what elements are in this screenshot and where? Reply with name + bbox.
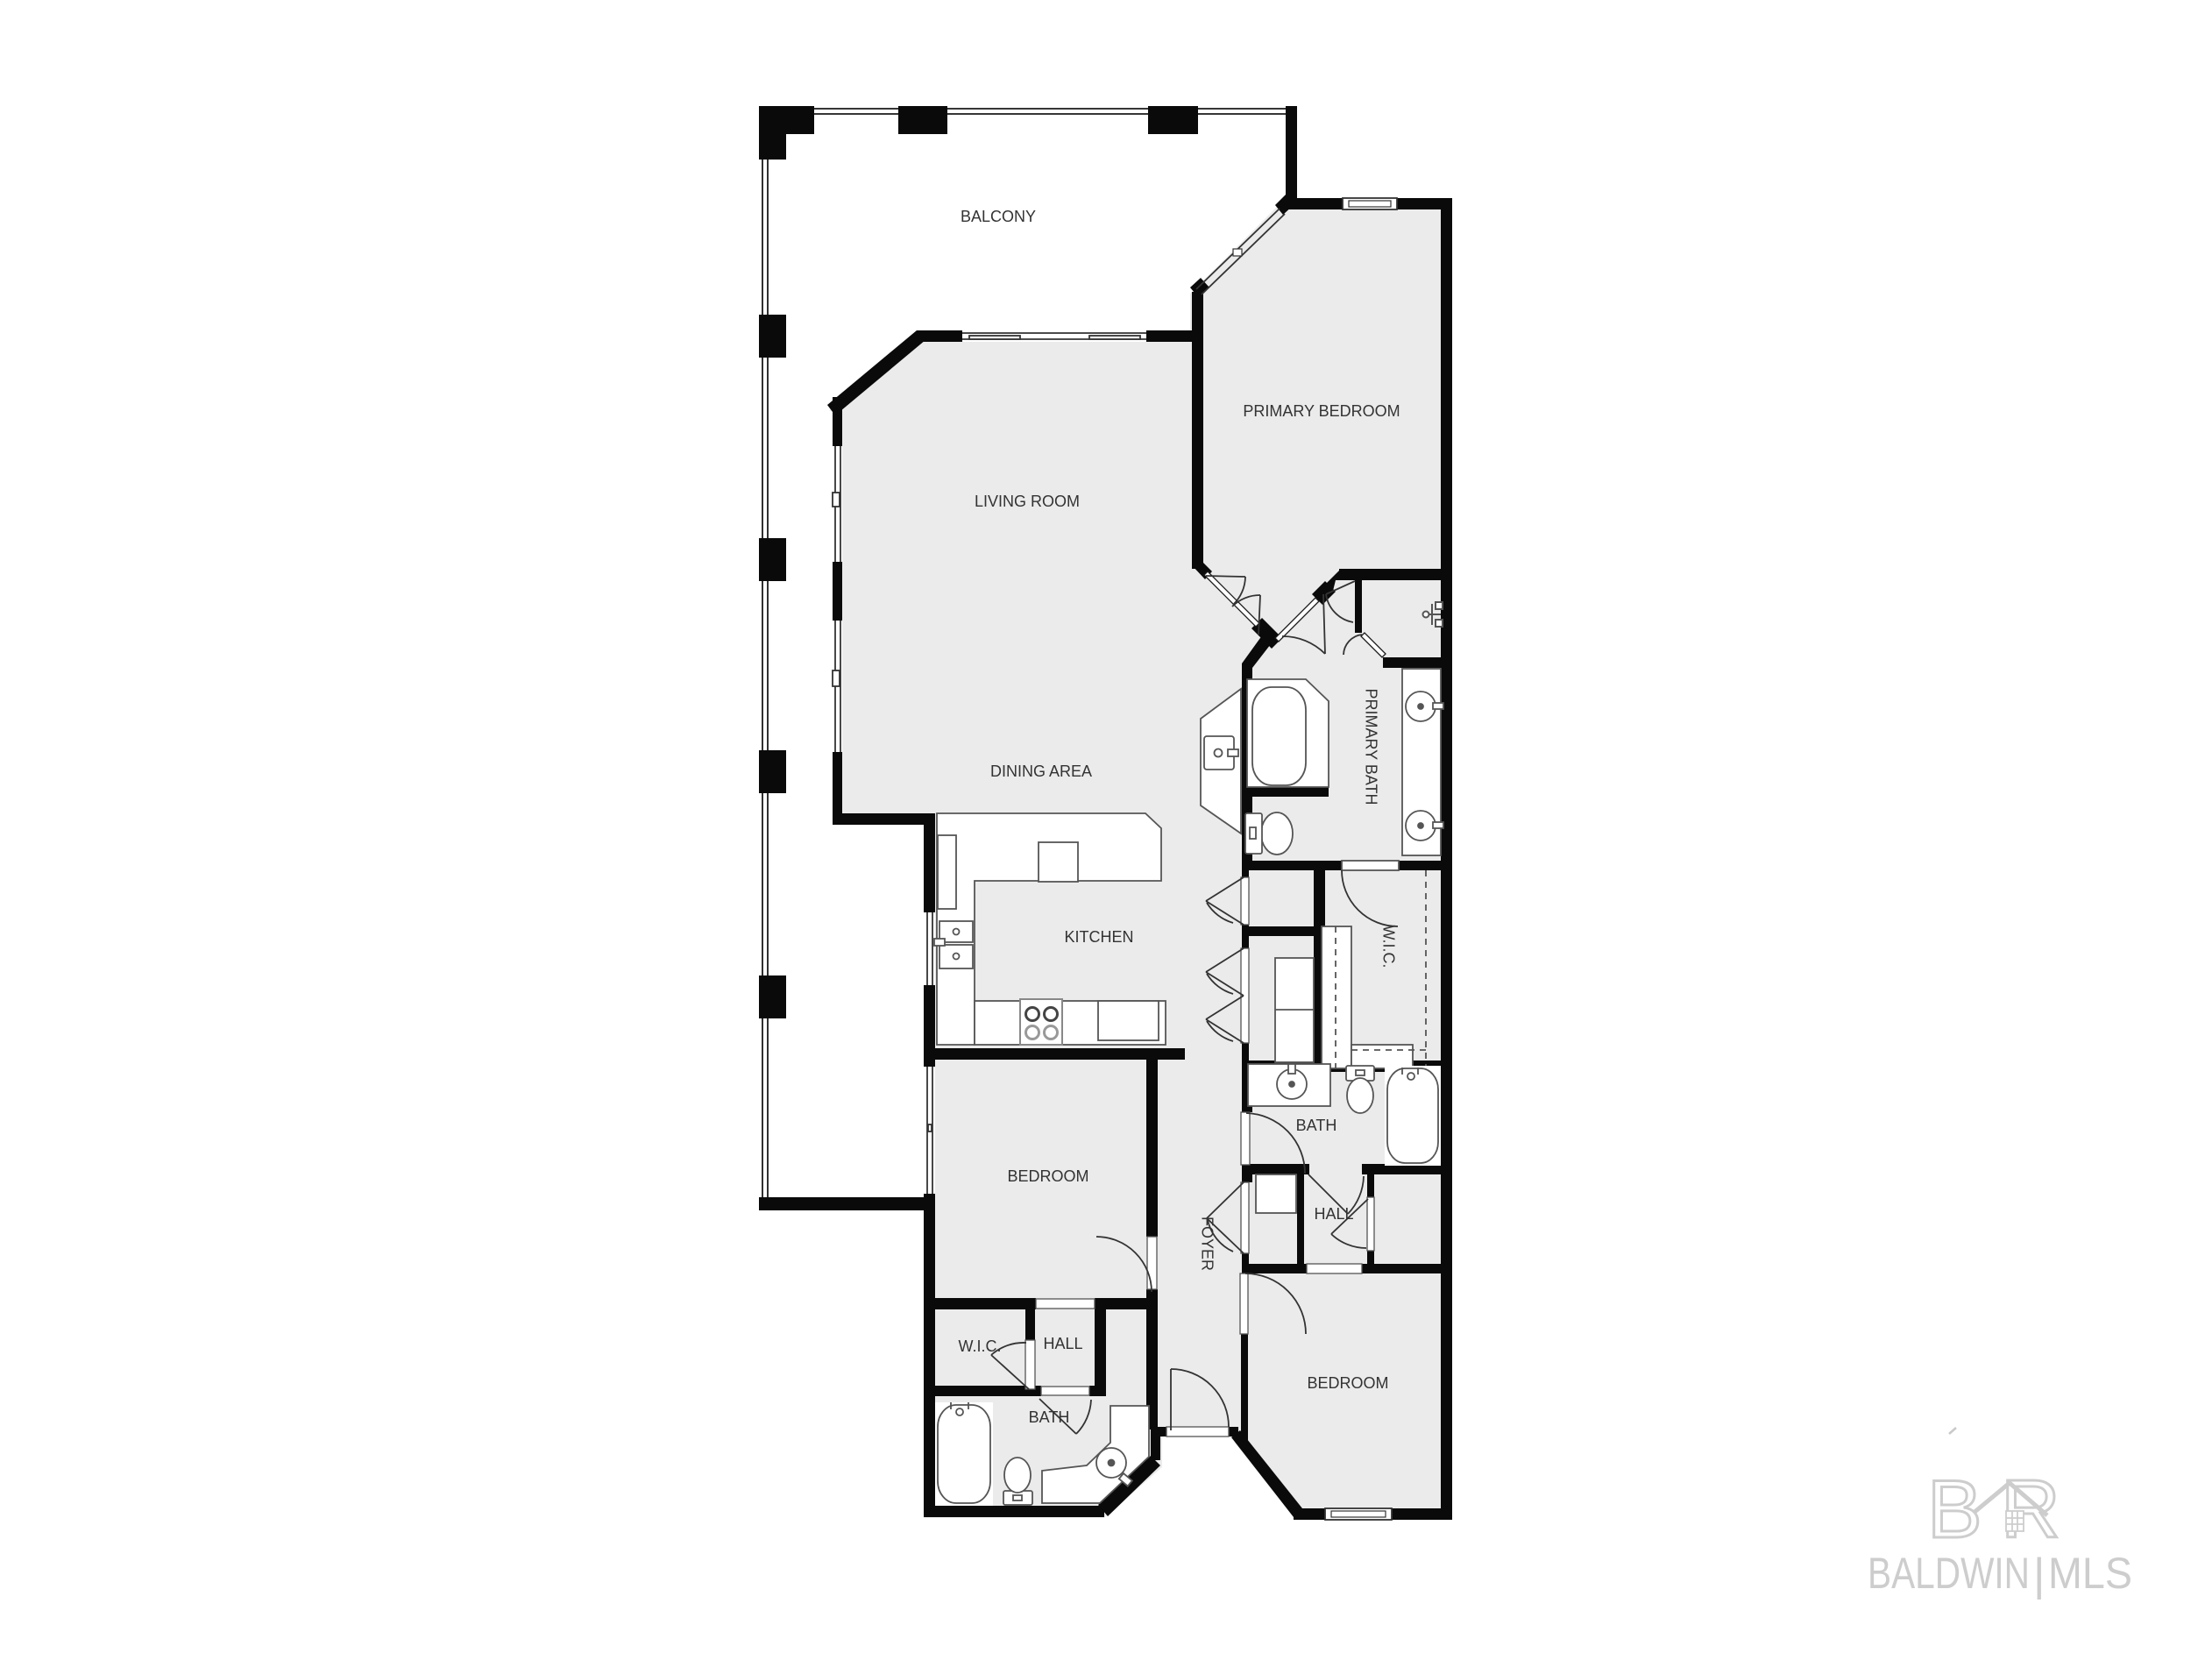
svg-text:HALL: HALL [1043,1335,1082,1352]
svg-text:W.I.C.: W.I.C. [1379,926,1397,968]
svg-text:LIVING ROOM: LIVING ROOM [975,493,1080,510]
svg-text:BALDWIN: BALDWIN [1868,1549,2030,1598]
svg-text:|: | [2033,1550,2045,1600]
svg-text:KITCHEN: KITCHEN [1064,928,1133,946]
svg-text:W.I.C.: W.I.C. [959,1337,1002,1355]
svg-text:BEDROOM: BEDROOM [1007,1167,1088,1185]
svg-text:HALL: HALL [1314,1205,1353,1223]
svg-text:MLS: MLS [2048,1549,2132,1598]
svg-text:BALCONY: BALCONY [961,208,1036,225]
svg-text:BATH: BATH [1029,1408,1070,1426]
svg-text:BATH: BATH [1296,1117,1337,1134]
svg-text:BEDROOM: BEDROOM [1307,1374,1388,1392]
svg-text:PRIMARY BATH: PRIMARY BATH [1362,688,1379,805]
svg-text:R: R [2001,1463,2060,1555]
svg-text:PRIMARY BEDROOM: PRIMARY BEDROOM [1243,402,1400,420]
svg-text:DINING AREA: DINING AREA [990,763,1092,780]
svg-text:FOYER: FOYER [1198,1217,1216,1271]
svg-text:B: B [1927,1463,1982,1555]
